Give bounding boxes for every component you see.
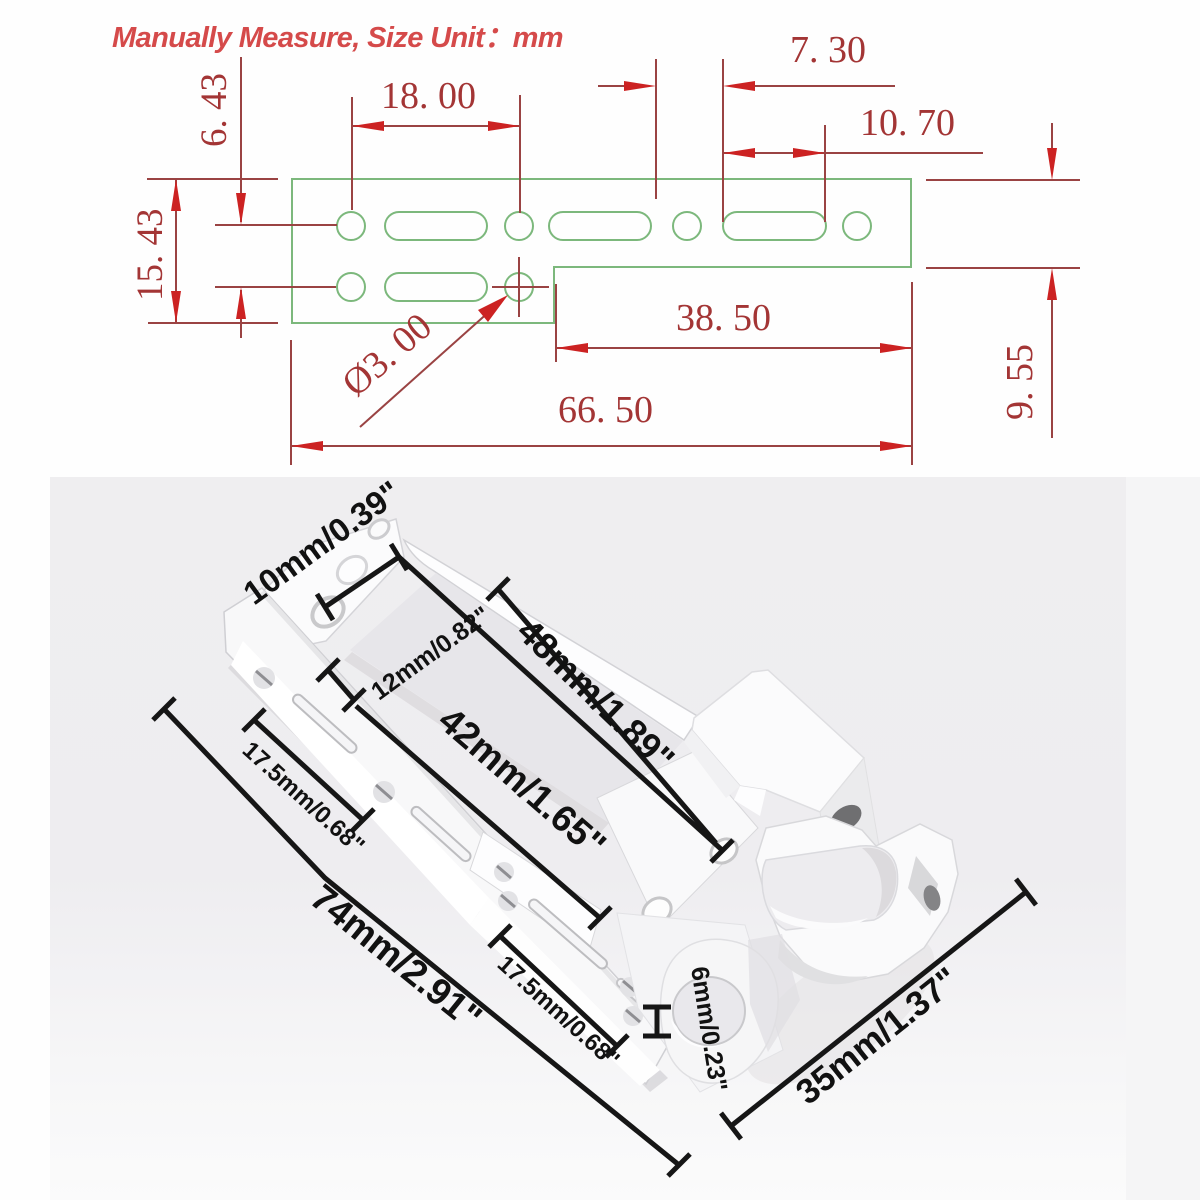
svg-text:7. 30: 7. 30: [790, 29, 866, 71]
svg-text:9. 55: 9. 55: [999, 344, 1041, 420]
svg-text:38. 50: 38. 50: [676, 297, 771, 339]
svg-text:Manually Measure, Size Unit：mm: Manually Measure, Size Unit：mm: [112, 22, 563, 54]
svg-text:Ø3. 00: Ø3. 00: [334, 305, 440, 405]
svg-text:6. 43: 6. 43: [194, 73, 235, 147]
svg-text:15. 43: 15. 43: [130, 209, 171, 302]
svg-text:10. 70: 10. 70: [860, 102, 955, 144]
svg-text:18. 00: 18. 00: [381, 75, 476, 117]
svg-text:66. 50: 66. 50: [558, 389, 653, 431]
